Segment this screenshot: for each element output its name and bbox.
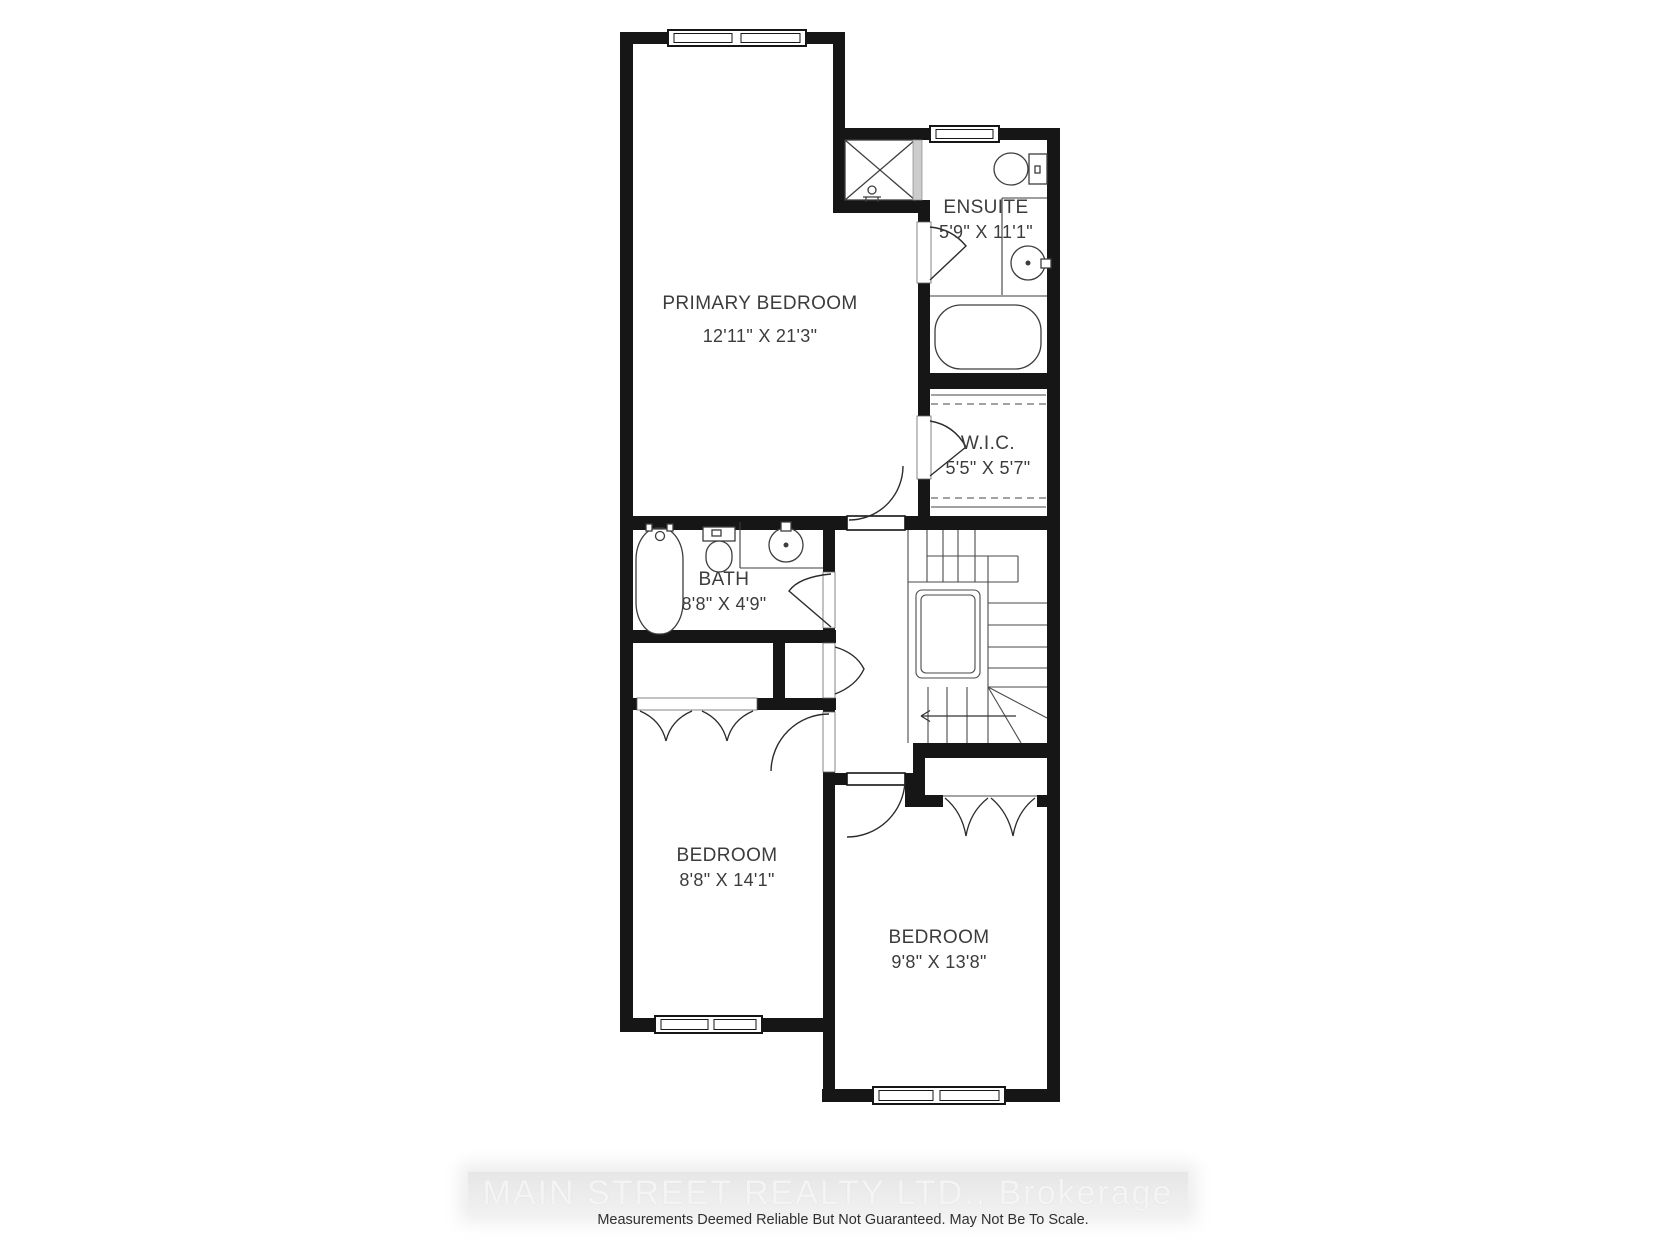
measurement-disclaimer: Measurements Deemed Reliable But Not Gua… <box>597 1212 1088 1228</box>
room-dimensions: 5'9" X 11'1" <box>939 220 1033 245</box>
room-label-bedroom-left: BEDROOM 8'8" X 14'1" <box>677 843 778 893</box>
room-label-primary-bedroom: PRIMARY BEDROOM 12'11" X 21'3" <box>662 288 857 352</box>
closet-door-icon <box>945 798 988 836</box>
door-swing-icon <box>847 782 905 837</box>
closet-door-icon <box>640 711 692 741</box>
door-swing-icon <box>849 466 903 520</box>
room-name: BATH <box>681 567 766 592</box>
ensuite-fixtures <box>930 153 1051 369</box>
room-label-wic: W.I.C. 5'5" X 5'7" <box>945 431 1030 481</box>
room-name: PRIMARY BEDROOM <box>662 288 857 320</box>
window-icon <box>668 30 806 46</box>
room-name: W.I.C. <box>945 431 1030 456</box>
door-leaves <box>847 516 905 785</box>
bathtub-icon <box>636 524 683 634</box>
closet-door-icon <box>991 798 1035 836</box>
room-dimensions: 12'11" X 21'3" <box>662 320 857 352</box>
door-swing-icon <box>835 647 864 694</box>
room-name: BEDROOM <box>677 843 778 868</box>
room-name: ENSUITE <box>939 195 1033 220</box>
room-label-bedroom-right: BEDROOM 9'8" X 13'8" <box>889 925 990 975</box>
closet-doors <box>637 698 1037 836</box>
stairs-icon <box>908 530 1047 743</box>
room-dimensions: 9'8" X 13'8" <box>889 950 990 975</box>
window-icon <box>873 1087 1005 1104</box>
stairs-direction-arrow <box>921 711 1016 722</box>
floorplan-page: { "floorplan": { "title": "Second Floor … <box>0 0 1680 1260</box>
room-label-ensuite: ENSUITE 5'9" X 11'1" <box>939 195 1033 245</box>
toilet-icon <box>703 527 735 572</box>
floorplan-drawing <box>0 0 1680 1260</box>
room-name: BEDROOM <box>889 925 990 950</box>
shower-icon <box>845 140 922 202</box>
brokerage-watermark: MAIN STREET REALTY LTD., Brokerage <box>468 1172 1188 1214</box>
closet-door-icon <box>702 711 753 741</box>
window-icon <box>930 126 999 142</box>
room-label-bath: BATH 8'8" X 4'9" <box>681 567 766 617</box>
room-dimensions: 8'8" X 4'9" <box>681 592 766 617</box>
door-swing-icon <box>771 714 829 771</box>
window-icon <box>655 1016 762 1033</box>
toilet-icon <box>994 153 1047 185</box>
brokerage-watermark-text: MAIN STREET REALTY LTD., Brokerage <box>483 1174 1174 1213</box>
sink-icon <box>1011 246 1051 280</box>
bathtub-icon <box>930 296 1047 369</box>
room-dimensions: 5'5" X 5'7" <box>945 456 1030 481</box>
room-dimensions: 8'8" X 14'1" <box>677 868 778 893</box>
